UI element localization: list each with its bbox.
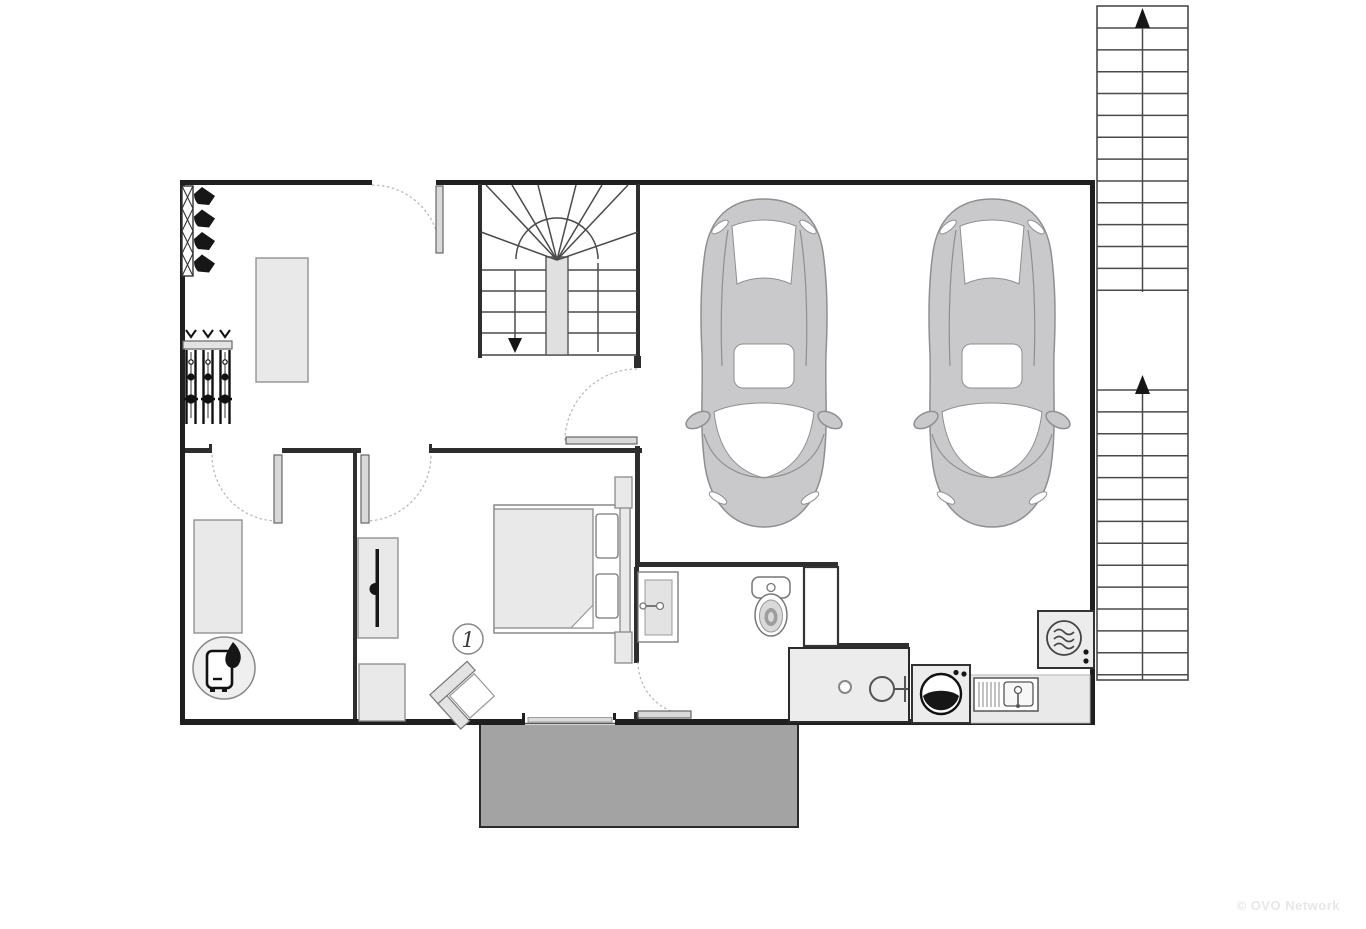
staircase-winder-steps	[481, 185, 638, 260]
ski-boot-icon	[194, 187, 215, 205]
floorplan-canvas: 1	[0, 0, 1366, 929]
mattress	[494, 509, 593, 628]
sink-icon	[638, 572, 678, 642]
room-number-badge: 1	[453, 624, 483, 654]
wall-bedroom-garage	[635, 446, 640, 567]
laundry-area	[912, 611, 1094, 723]
door-jamb-tick	[429, 444, 432, 453]
storage-door-swing	[212, 455, 278, 521]
storage-door-leaf	[274, 455, 282, 523]
headboard	[620, 505, 630, 633]
wall-skiroom-south-b	[282, 448, 361, 453]
staircase-rail-curve	[516, 218, 598, 259]
staircase-steps-right	[568, 270, 637, 333]
stairs-down-icon	[508, 338, 522, 353]
ski-boot-icon	[194, 232, 215, 250]
toilet-icon	[752, 577, 790, 636]
boiler-icon	[193, 637, 255, 699]
wall-skiroom-south-c	[431, 448, 642, 453]
car-icon	[911, 199, 1073, 527]
wall-stairs-garage	[636, 184, 640, 358]
door-jamb-stub	[634, 356, 641, 368]
window-jamb-tick	[613, 713, 616, 720]
terrace-window	[528, 718, 612, 723]
wall-storage-bedroom	[353, 448, 357, 719]
dryer-icon	[1038, 611, 1094, 668]
pillow	[596, 514, 618, 558]
internal-staircase	[481, 185, 638, 355]
wall-skiroom-south-a	[185, 448, 212, 453]
bedroom-door-swing	[365, 455, 431, 521]
ski-boot-icon	[194, 210, 215, 228]
nightstand	[615, 477, 632, 508]
nightstand	[615, 632, 632, 663]
armchair-icon	[430, 661, 498, 729]
garage-landing-door-swing	[565, 369, 637, 441]
ski-boots	[194, 187, 215, 273]
window-jamb-tick	[522, 713, 525, 720]
room-number-label: 1	[461, 628, 474, 652]
terrace	[480, 722, 798, 827]
garage	[683, 199, 1073, 527]
bathroom-door-swing	[638, 662, 691, 715]
floorplan-svg: 1	[0, 0, 1366, 929]
duct	[804, 567, 838, 646]
watermark: © OVO Network	[1237, 898, 1341, 913]
bedroom-door-leaf	[361, 455, 369, 523]
laundry-sink-icon	[974, 678, 1038, 711]
ski-rack-bar	[183, 341, 232, 349]
ski-room	[182, 186, 308, 424]
wall-shower-north	[838, 643, 909, 647]
boot-warmer-rack	[182, 186, 193, 276]
external-staircase	[1097, 6, 1188, 680]
top-wall-right	[436, 180, 1095, 185]
staircase-spine	[546, 257, 568, 355]
bedroom: 1	[358, 477, 632, 729]
bed-icon	[494, 505, 630, 633]
washing-machine-icon	[912, 665, 970, 723]
ski-room-table	[256, 258, 308, 382]
car-icon	[683, 199, 845, 527]
door-jamb-tick	[209, 444, 212, 453]
wall-skiroom-stairs	[478, 184, 482, 358]
pillow	[596, 574, 618, 618]
garage-landing-door-leaf	[566, 437, 637, 444]
top-wall-left	[180, 180, 372, 185]
storage-room	[193, 520, 255, 699]
bathroom-door-leaf	[638, 711, 691, 718]
entry-door-swing	[372, 185, 440, 253]
bedroom-chest	[359, 664, 405, 721]
storage-shelf	[194, 520, 242, 633]
bathroom	[638, 572, 909, 722]
shower-icon	[789, 648, 909, 722]
ski-boot-icon	[194, 255, 215, 273]
entry-door-leaf	[436, 186, 443, 253]
staircase-steps-left	[482, 270, 546, 333]
